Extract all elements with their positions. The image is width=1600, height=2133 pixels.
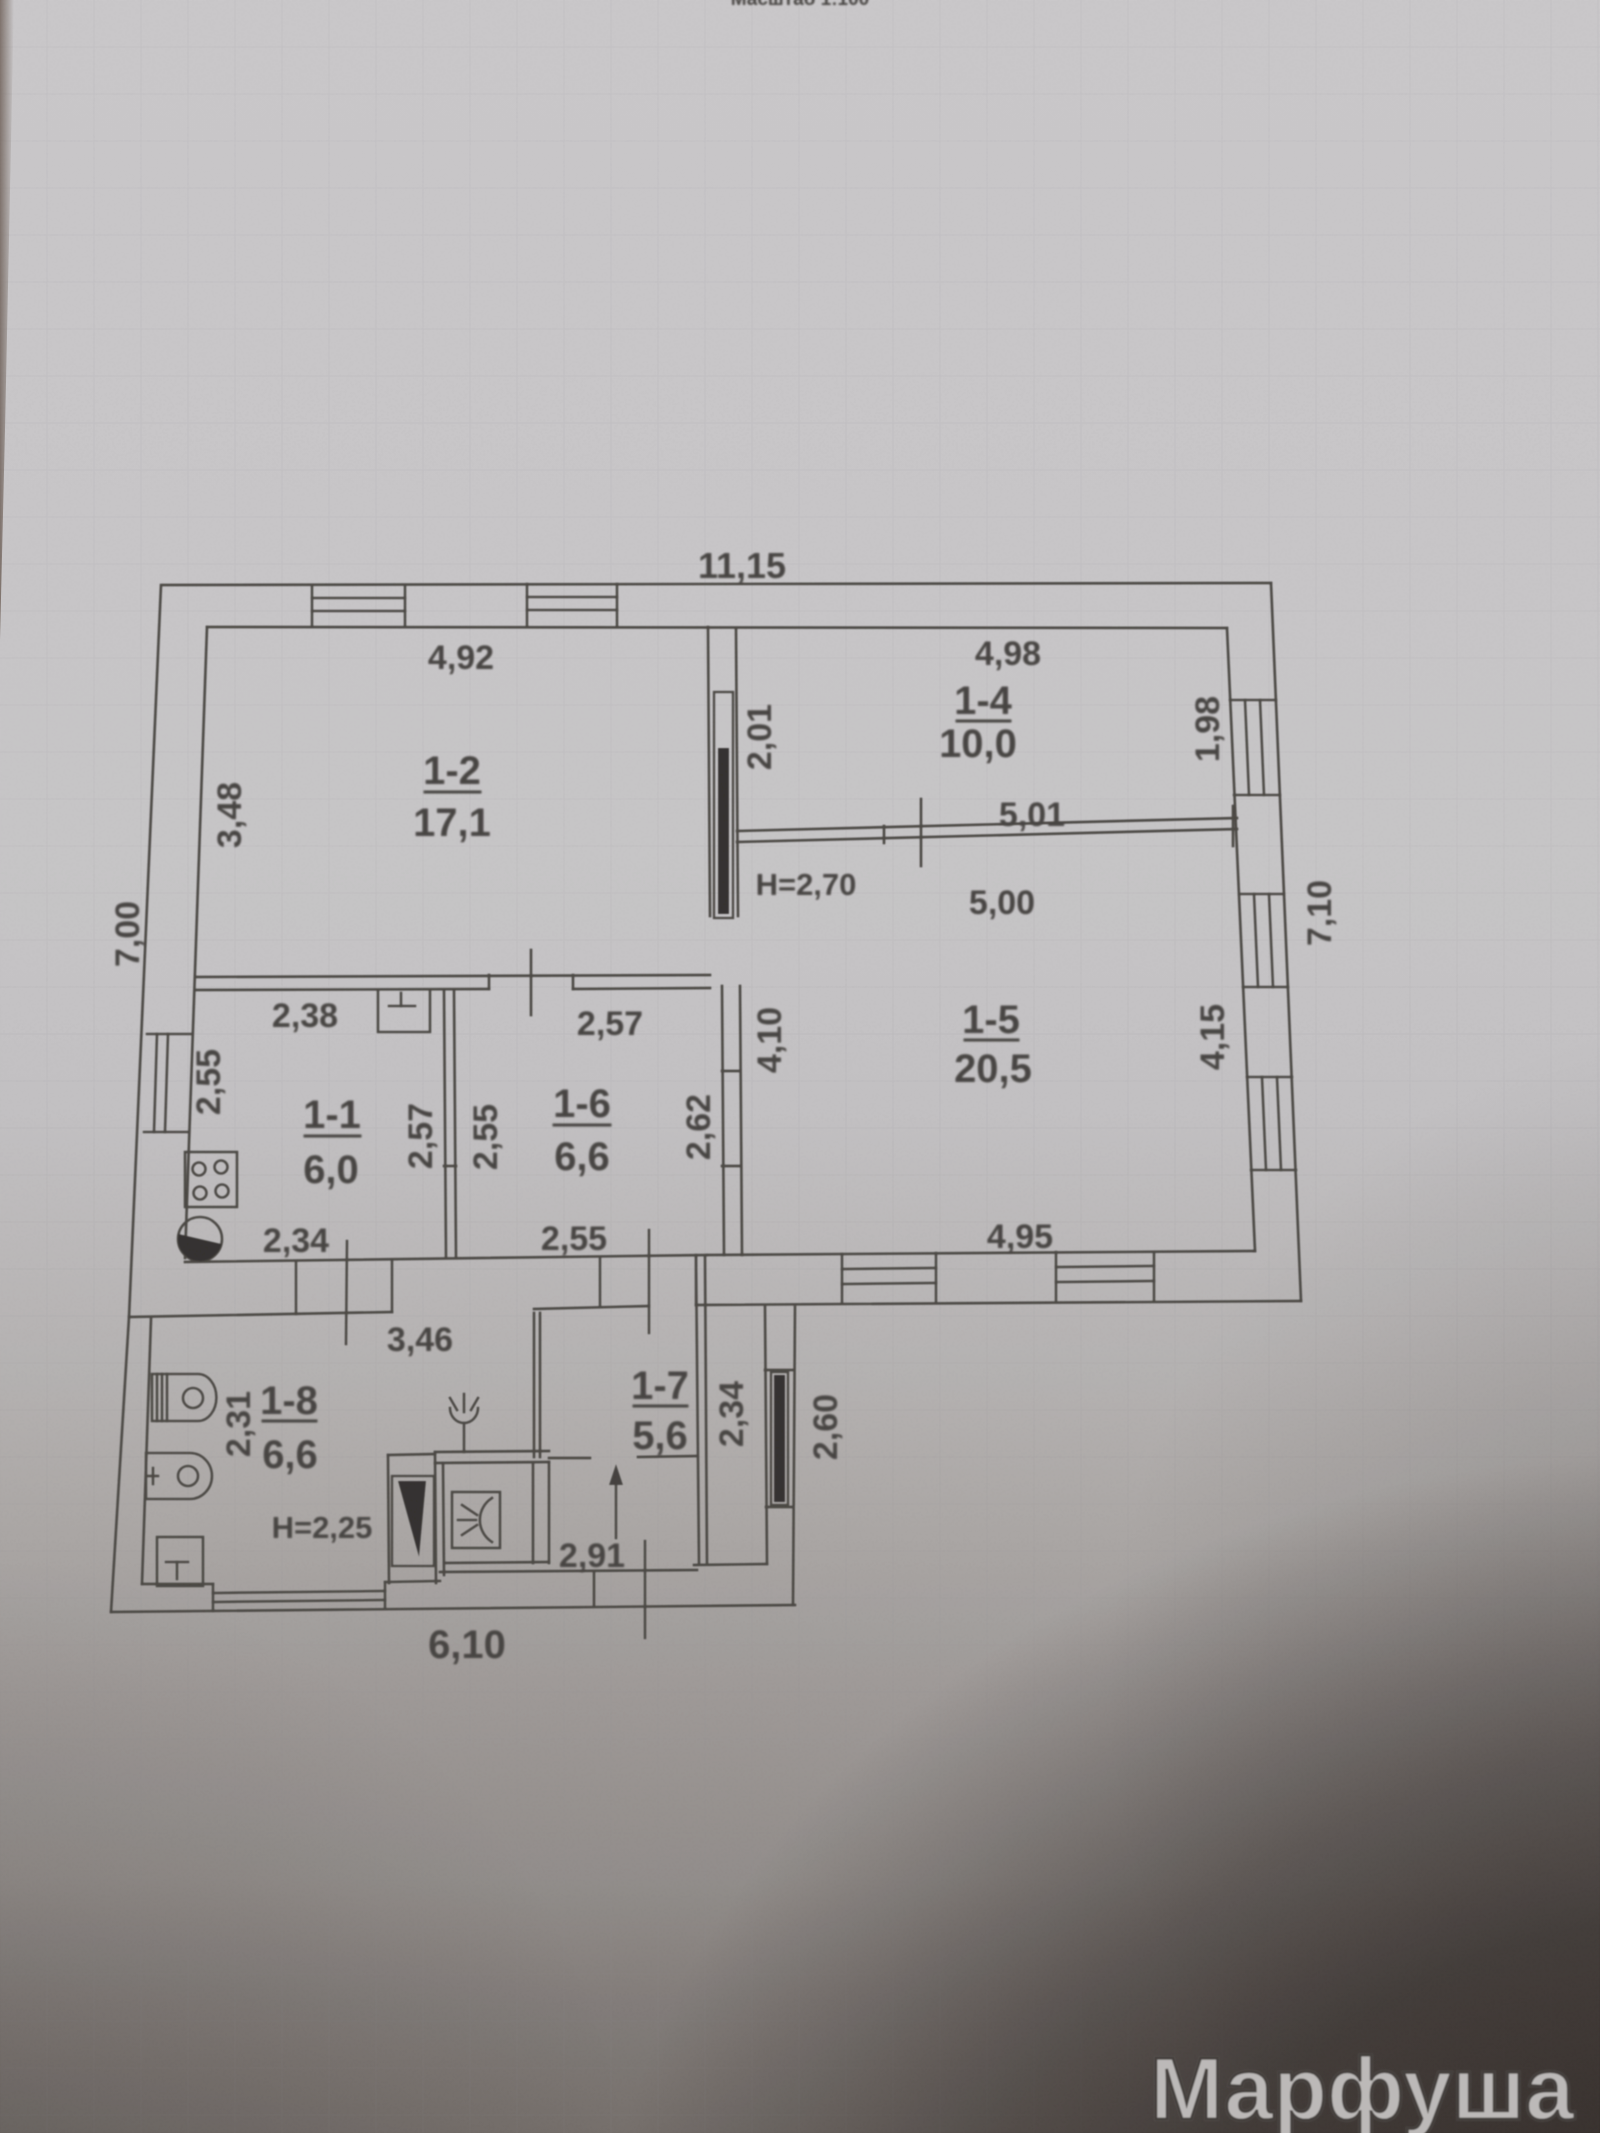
svg-text:4,15: 4,15 [1194, 1004, 1232, 1070]
svg-text:6,6: 6,6 [262, 1433, 318, 1477]
svg-text:6,0: 6,0 [303, 1148, 359, 1192]
svg-text:1-6: 1-6 [553, 1082, 611, 1126]
svg-text:2,57: 2,57 [402, 1103, 440, 1169]
svg-text:2,55: 2,55 [467, 1104, 505, 1170]
svg-text:5,6: 5,6 [632, 1414, 688, 1458]
svg-text:2,31: 2,31 [220, 1391, 258, 1457]
svg-text:2,38: 2,38 [272, 997, 338, 1035]
svg-text:Марфуша: Марфуша [1150, 2039, 1575, 2133]
svg-text:1-5: 1-5 [962, 998, 1020, 1042]
svg-text:5,01: 5,01 [999, 796, 1065, 834]
svg-text:2,60: 2,60 [807, 1394, 845, 1460]
svg-text:2,91: 2,91 [559, 1537, 625, 1575]
svg-text:7,00: 7,00 [109, 901, 147, 967]
svg-text:2,55: 2,55 [190, 1049, 228, 1115]
svg-text:3,48: 3,48 [211, 782, 249, 848]
svg-text:1,98: 1,98 [1189, 696, 1227, 762]
svg-text:2,57: 2,57 [577, 1005, 643, 1043]
svg-text:2,62: 2,62 [680, 1094, 718, 1160]
svg-text:7,10: 7,10 [1301, 880, 1339, 946]
svg-text:4,95: 4,95 [987, 1218, 1053, 1256]
svg-text:4,92: 4,92 [428, 639, 494, 677]
svg-text:2,01: 2,01 [741, 704, 779, 770]
svg-text:2,34: 2,34 [713, 1381, 751, 1447]
svg-text:Масштаб 1:100: Масштаб 1:100 [731, 0, 870, 10]
svg-text:10,0: 10,0 [939, 722, 1017, 766]
svg-text:20,5: 20,5 [954, 1047, 1032, 1091]
svg-text:1-7: 1-7 [631, 1364, 689, 1408]
svg-text:5,00: 5,00 [969, 884, 1035, 922]
svg-text:17,1: 17,1 [413, 801, 491, 845]
svg-text:6,10: 6,10 [428, 1623, 506, 1667]
svg-text:4,10: 4,10 [751, 1007, 789, 1073]
svg-text:1-8: 1-8 [260, 1379, 318, 1423]
svg-text:2,34: 2,34 [263, 1222, 329, 1260]
svg-text:1-1: 1-1 [303, 1093, 361, 1137]
svg-text:1-4: 1-4 [954, 679, 1013, 723]
svg-text:1-2: 1-2 [423, 749, 481, 793]
svg-text:H=2,70: H=2,70 [756, 867, 857, 902]
svg-text:6,6: 6,6 [554, 1135, 610, 1179]
svg-text:4,98: 4,98 [975, 635, 1041, 673]
svg-text:2,55: 2,55 [541, 1220, 607, 1258]
svg-text:H=2,25: H=2,25 [272, 1510, 373, 1545]
svg-text:11,15: 11,15 [698, 545, 786, 586]
svg-text:3,46: 3,46 [387, 1321, 453, 1359]
